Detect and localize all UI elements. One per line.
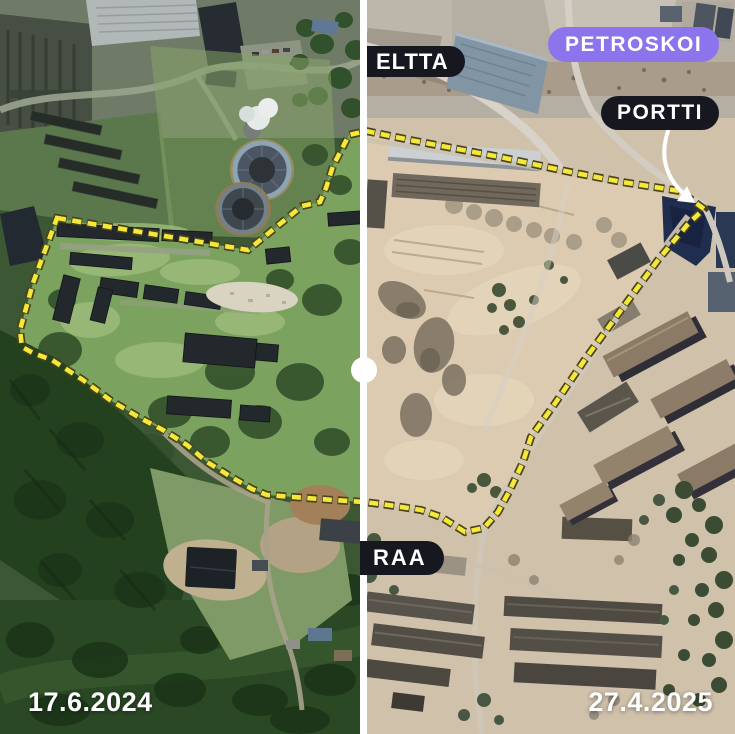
label-portti: PORTTI	[601, 96, 719, 130]
satellite-comparison: ELTTA PETROSKOI PORTTI RAA 17.6.2024 27.…	[0, 0, 735, 734]
label-petroskoi: PETROSKOI	[548, 27, 719, 62]
label-eltta: ELTTA	[367, 46, 465, 77]
label-raa: RAA	[360, 541, 444, 575]
date-after: 27.4.2025	[588, 687, 713, 718]
before-scene	[0, 0, 364, 734]
date-before: 17.6.2024	[28, 687, 153, 718]
comparison-slider-handle[interactable]	[351, 357, 377, 383]
satellite-image-before	[0, 0, 364, 734]
